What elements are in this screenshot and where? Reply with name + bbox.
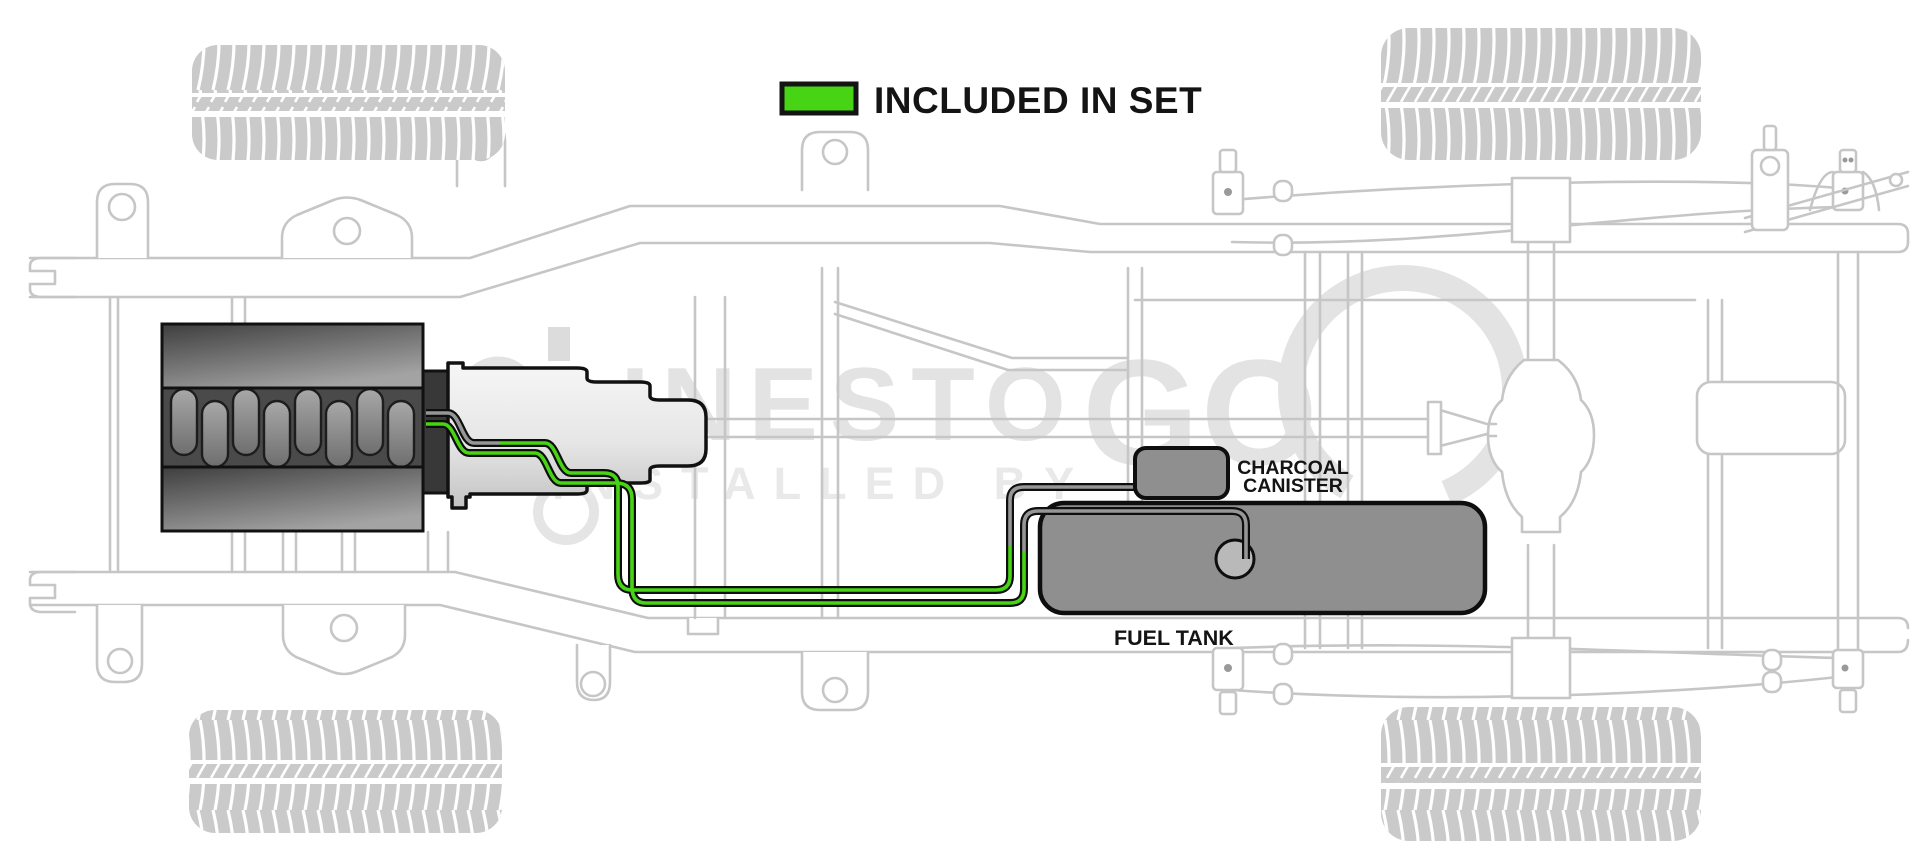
cab-mount-hole-icon: [823, 140, 847, 164]
spring-pin: [1220, 150, 1236, 172]
tire-front-right: [1381, 28, 1701, 160]
body-mount-hole-icon: [331, 615, 357, 641]
spring-clamp: [1274, 644, 1292, 664]
crossmember-rear: [1708, 300, 1722, 648]
axle-ubolt-plate-top: [1512, 178, 1570, 242]
tire-rear-right: [1381, 707, 1701, 841]
spring-clamp: [1763, 672, 1781, 692]
valve-cover-top: [162, 324, 423, 388]
spring-pin: [1840, 690, 1856, 712]
crossmember-rear-end: [1838, 252, 1858, 655]
bracket-hole-icon: [109, 194, 135, 220]
u-joint: [1428, 402, 1441, 454]
pin-hole-icon: [1843, 158, 1848, 163]
steering-pin: [1764, 126, 1776, 150]
steering-hole-icon: [1761, 157, 1779, 175]
engine-rear-block: [423, 371, 450, 493]
driveshaft-yoke: [1440, 404, 1487, 452]
differential: [1488, 360, 1594, 532]
fuel-tank-label: FUEL TANK: [1114, 626, 1234, 650]
bracket-hole-icon: [108, 649, 132, 673]
hanger-hole-icon: [1224, 188, 1232, 196]
frame-tab: [548, 327, 570, 361]
parts-diagram-page: LINESTO GO INSTALLED BY: [0, 0, 1930, 841]
crossmember-front: [110, 297, 118, 572]
hanger-hole-icon: [581, 672, 605, 696]
body-mount-hole-icon: [334, 218, 360, 244]
linkage-end-icon: [1890, 174, 1902, 186]
legend: INCLUDED IN SET: [782, 80, 1202, 121]
shackle-hole-icon: [1842, 665, 1849, 672]
charcoal-canister: [1135, 448, 1228, 498]
spring-clamp: [1274, 684, 1292, 704]
spare-tire-carrier: [1697, 382, 1845, 454]
pin-hole-icon: [1849, 158, 1854, 163]
spring-pin: [1840, 150, 1856, 172]
cab-mount-hole-icon: [823, 678, 847, 702]
engine-mount-stubs-2: [283, 532, 448, 572]
tire-front-left: [192, 45, 505, 160]
charcoal-canister-label-line2: CANISTER: [1243, 475, 1343, 497]
valve-cover-bottom: [162, 467, 423, 531]
spring-clamp: [1274, 181, 1292, 201]
diagram-canvas: LINESTO GO INSTALLED BY: [0, 0, 1930, 841]
legend-swatch: [782, 84, 856, 113]
legend-label: INCLUDED IN SET: [874, 80, 1202, 121]
spring-pin: [1220, 692, 1236, 714]
spring-clamp: [1274, 235, 1292, 255]
fuel-tank: [1040, 503, 1485, 613]
frame-horn-front-top: [30, 258, 75, 297]
engine: [162, 324, 450, 531]
spring-clamp: [1763, 650, 1781, 670]
tire-rear-left: [189, 710, 502, 833]
axle-ubolt-plate-bottom: [1512, 638, 1570, 698]
frame-notch: [688, 618, 718, 634]
hanger-hole-icon: [1224, 664, 1232, 672]
